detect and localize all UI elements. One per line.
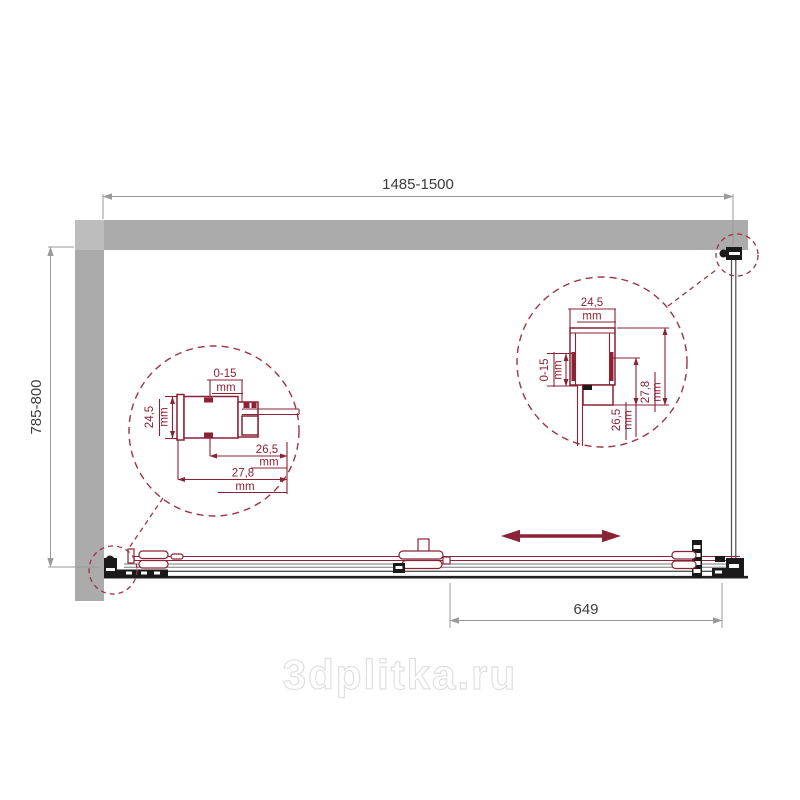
svg-text:26,5: 26,5 bbox=[611, 409, 623, 431]
svg-text:mm: mm bbox=[159, 407, 171, 426]
watermark: 3dplitka.ru bbox=[283, 651, 517, 698]
detail-view-right: 24,5 mm 0-15 mm bbox=[517, 277, 687, 447]
svg-text:mm: mm bbox=[259, 457, 278, 469]
width-dimension-label: 1485-1500 bbox=[382, 176, 454, 193]
svg-text:27,8: 27,8 bbox=[640, 381, 652, 403]
svg-text:mm: mm bbox=[623, 410, 635, 429]
svg-text:24,5: 24,5 bbox=[144, 406, 156, 428]
door-width-label: 649 bbox=[573, 601, 598, 618]
wall-corner bbox=[75, 220, 104, 250]
left-profile-section bbox=[177, 395, 299, 441]
svg-text:mm: mm bbox=[235, 481, 254, 493]
svg-text:27,8: 27,8 bbox=[232, 468, 254, 480]
right-corner-bracket bbox=[712, 556, 744, 577]
svg-text:0-15: 0-15 bbox=[539, 358, 551, 381]
svg-text:24,5: 24,5 bbox=[581, 297, 603, 309]
svg-text:mm: mm bbox=[652, 382, 664, 401]
svg-text:26,5: 26,5 bbox=[256, 444, 278, 456]
height-dimension-label: 785-800 bbox=[28, 379, 45, 434]
right-dim-outer: 27,8 mm bbox=[613, 328, 669, 412]
shower-enclosure-drawing: 1485-1500 785-800 bbox=[0, 0, 800, 800]
svg-text:mm: mm bbox=[553, 360, 565, 379]
side-glass-panel bbox=[732, 260, 736, 558]
right-rollers bbox=[672, 540, 702, 578]
walls bbox=[75, 220, 748, 601]
svg-text:0-15: 0-15 bbox=[213, 368, 236, 380]
slide-direction-arrow-icon bbox=[501, 530, 621, 542]
center-door-carriage bbox=[393, 539, 450, 573]
top-wall bbox=[75, 220, 748, 250]
svg-text:mm: mm bbox=[582, 311, 601, 323]
right-profile-section bbox=[570, 328, 615, 446]
right-dim-size: 24,5 mm bbox=[568, 297, 616, 328]
left-dim-size: 24,5 mm bbox=[144, 397, 178, 439]
door-width-dimension: 649 bbox=[450, 583, 722, 628]
left-wall bbox=[75, 220, 104, 601]
detail-view-left: 0-15 mm 24,5 mm 26,5 mm bbox=[129, 346, 299, 516]
svg-text:mm: mm bbox=[216, 382, 235, 394]
